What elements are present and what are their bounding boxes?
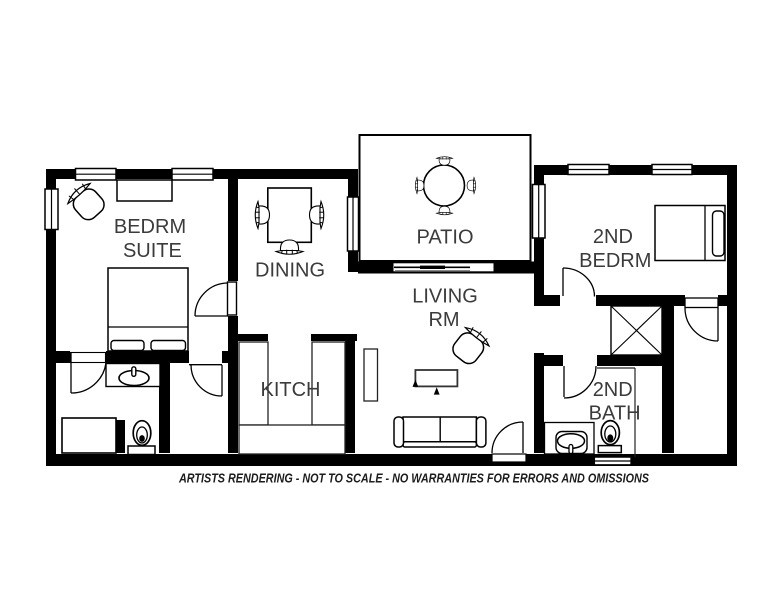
svg-text:LIVING: LIVING bbox=[412, 286, 478, 308]
svg-text:2ND: 2ND bbox=[593, 226, 633, 248]
svg-text:KITCH: KITCH bbox=[261, 379, 321, 401]
svg-text:BEDRM: BEDRM bbox=[579, 250, 651, 272]
svg-text:BATH: BATH bbox=[589, 402, 641, 424]
svg-text:2ND: 2ND bbox=[593, 379, 633, 401]
svg-text:BEDRM: BEDRM bbox=[114, 216, 186, 238]
svg-text:ARTISTS RENDERING - NOT TO SCA: ARTISTS RENDERING - NOT TO SCALE - NO WA… bbox=[178, 471, 649, 486]
svg-text:PATIO: PATIO bbox=[416, 227, 473, 249]
svg-text:DINING: DINING bbox=[255, 259, 325, 281]
svg-text:RM: RM bbox=[428, 309, 459, 331]
svg-text:SUITE: SUITE bbox=[123, 240, 182, 262]
